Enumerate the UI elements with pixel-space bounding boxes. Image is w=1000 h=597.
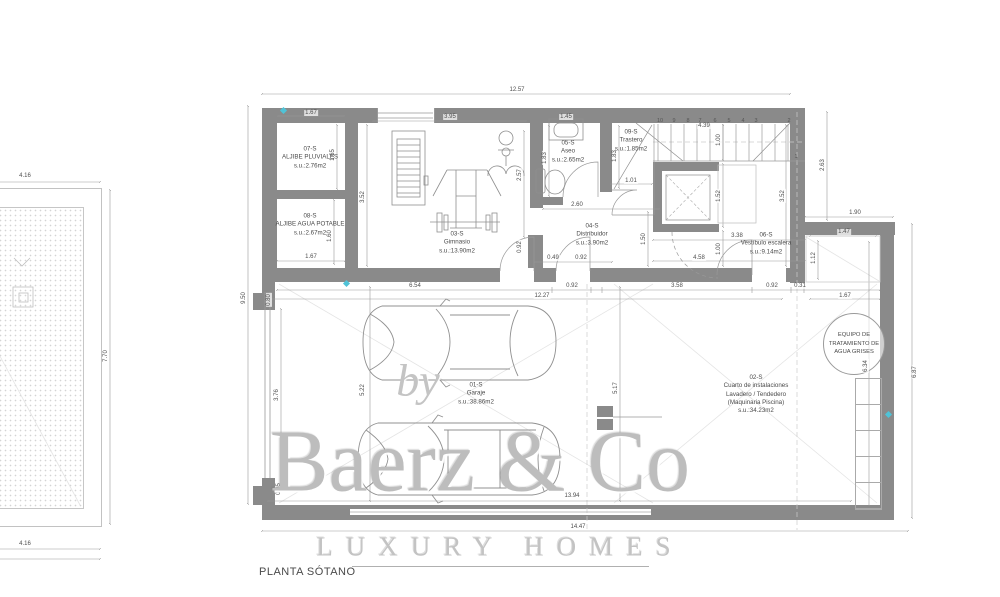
dimension-label: 5.22 xyxy=(360,383,366,397)
dimension-label: 1.00 xyxy=(716,133,722,147)
room-label-01-s: 01-SGarajes.u.:38.86m2 xyxy=(458,381,494,406)
dimension-label: 1.67 xyxy=(838,293,852,299)
stair-tread-number: 3 xyxy=(754,118,757,124)
dimension-label: 1.47 xyxy=(837,229,851,235)
toilet-tank xyxy=(536,169,545,193)
equipment-circle-line: AGUA GRISES xyxy=(834,348,874,357)
room-diagonal-guides xyxy=(0,237,879,505)
dimension-label: 3.52 xyxy=(360,190,366,204)
equipment-circle-line: TRATAMIENTO DE xyxy=(829,340,879,349)
exercise-bike xyxy=(499,131,513,145)
dimension-label: 0.49 xyxy=(546,255,560,261)
stair-tread-number: 8 xyxy=(686,118,689,124)
stair-tread-number: 10 xyxy=(657,118,663,124)
door-trastero xyxy=(612,190,637,215)
dimension-label: 1.01 xyxy=(624,178,638,184)
dimension-label: 1.12 xyxy=(811,251,817,265)
dimension-label: 0.92 xyxy=(765,283,779,289)
stair-tread-number: 4 xyxy=(741,118,744,124)
equipment-circle-line: EQUIPO DE xyxy=(838,331,870,340)
dimension-label: 0.31 xyxy=(793,283,807,289)
stair-tread-number: 2 xyxy=(787,118,790,124)
dimension-label: 4.16 xyxy=(18,173,32,179)
dimension-label: 2.60 xyxy=(570,202,584,208)
dimension-label: 6.34 xyxy=(863,359,869,373)
gym-equipment xyxy=(392,131,524,232)
dimension-label: 4.16 xyxy=(18,541,32,547)
car-bottom xyxy=(358,415,560,503)
pool-skimmer-inner xyxy=(19,293,28,302)
dimension-label: 1.50 xyxy=(641,232,647,246)
pool-details xyxy=(13,258,33,307)
dimension-label: 12.57 xyxy=(508,87,525,93)
dimension-label: 3.95 xyxy=(443,114,457,120)
dimension-label: 2.63 xyxy=(820,158,826,172)
pool-arrow xyxy=(14,258,30,266)
dimension-label: 1.45 xyxy=(559,114,573,120)
dimension-label: 14.47 xyxy=(569,524,586,530)
stair-tread-number: 9 xyxy=(672,118,675,124)
car-top xyxy=(363,299,556,387)
dimension-label: 3.58 xyxy=(670,283,684,289)
room-label-06-s: 06-SVestíbulo escaleras.u.:9.14m2 xyxy=(741,231,792,256)
cabinet-run xyxy=(855,378,882,510)
dimension-label: 12.27 xyxy=(533,293,550,299)
dimension-label: 0.92 xyxy=(574,255,588,261)
sink-basin xyxy=(554,123,578,137)
dimension-label: 2.57 xyxy=(517,168,523,182)
dimension-label: 3.52 xyxy=(780,189,786,203)
dimension-label: 4.58 xyxy=(692,255,706,261)
toilet-bowl xyxy=(545,170,565,194)
pool-skimmer-outer xyxy=(13,287,33,307)
dimension-label: 1.00 xyxy=(716,242,722,256)
dimension-label: 6.87 xyxy=(912,365,918,379)
dimension-label: 0.65 xyxy=(276,482,282,496)
dimension-label: 1.90 xyxy=(848,210,862,216)
grey-water-equipment-circle: EQUIPO DETRATAMIENTO DEAGUA GRISES xyxy=(823,313,885,375)
room-label-04-s: 04-SDistribuidors.u.:3.90m2 xyxy=(576,222,608,247)
column-upper xyxy=(597,406,613,417)
column-lower xyxy=(597,419,613,430)
room-label-05-s: 05-SAseos.u.:2.65m2 xyxy=(552,139,584,164)
stair-tread-number: 1 xyxy=(794,154,797,160)
dimension-label: 13.94 xyxy=(563,493,580,499)
dimension-label: 9.50 xyxy=(241,291,247,305)
squat-rack xyxy=(433,170,501,228)
stair-tread-number: 5 xyxy=(727,118,730,124)
room-label-09-s: 09-STrasteros.u.:1.85m2 xyxy=(615,128,647,153)
dimension-label: 1.67 xyxy=(304,254,318,260)
elevator-cab xyxy=(666,175,710,220)
car-mirrors xyxy=(440,299,450,387)
door-aseo xyxy=(563,162,598,197)
dimension-label: 1.52 xyxy=(716,189,722,203)
room-label-02-s: 02-SCuarto de instalacionesLavadero / Te… xyxy=(724,374,789,416)
dimension-lines xyxy=(0,94,912,559)
stair-tread-number: 7 xyxy=(698,118,701,124)
plan-title: PLANTA SÓTANO xyxy=(259,566,356,578)
dimension-label: 7.70 xyxy=(103,349,109,363)
dimension-label: 5.17 xyxy=(613,381,619,395)
room-label-03-s: 03-SGimnasios.u.:13.90m2 xyxy=(439,230,475,255)
dimension-label: 0.80 xyxy=(266,293,272,307)
room-label-08-s: 08-SALJIBE AGUA POTABLEs.u.:2.67m2 xyxy=(275,212,344,237)
room-label-07-s: 07-SALJIBE PLUVIALESs.u.:2.76m2 xyxy=(282,145,338,170)
dimension-label: 0.92 xyxy=(517,240,523,254)
dimension-label: 3.76 xyxy=(274,388,280,402)
dimension-label: 1.83 xyxy=(542,151,548,165)
dimension-label: 0.92 xyxy=(565,283,579,289)
car-mirrors xyxy=(432,415,443,503)
dimension-label: 6.54 xyxy=(408,283,422,289)
dimension-label: 1.67 xyxy=(304,110,318,116)
stair-tread-number: 6 xyxy=(713,118,716,124)
floor-plan-canvas: EQUIPO DETRATAMIENTO DEAGUA GRISES 12.57… xyxy=(0,0,1000,597)
